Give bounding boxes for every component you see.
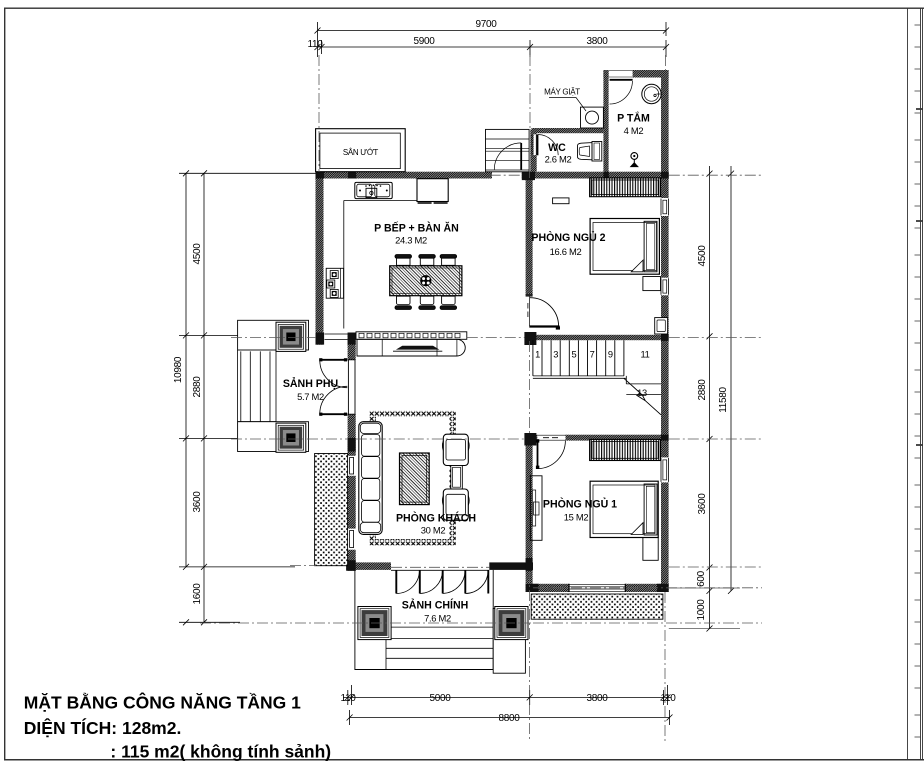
svg-text:2880: 2880 <box>192 376 203 398</box>
svg-text:110: 110 <box>660 693 676 704</box>
svg-text:MÁY GIẶT: MÁY GIẶT <box>544 88 580 97</box>
svg-text:SẢNH CHÍNH: SẢNH CHÍNH <box>402 599 469 612</box>
svg-text:3600: 3600 <box>697 493 708 515</box>
svg-text:SẢNH PHỤ: SẢNH PHỤ <box>283 377 338 390</box>
svg-text:2880: 2880 <box>697 379 708 401</box>
svg-text:3: 3 <box>553 350 558 360</box>
svg-text:4 M2: 4 M2 <box>624 125 644 136</box>
svg-text:MẶT BẰNG CÔNG NĂNG TẦNG 1: MẶT BẰNG CÔNG NĂNG TẦNG 1 <box>24 692 301 713</box>
svg-text:4500: 4500 <box>697 245 708 267</box>
svg-text:600: 600 <box>696 570 707 587</box>
svg-text:11: 11 <box>640 350 649 360</box>
svg-text:PHÒNG NGỦ 2: PHÒNG NGỦ 2 <box>531 231 605 244</box>
svg-text:PHÒNG KHÁCH: PHÒNG KHÁCH <box>396 512 476 525</box>
svg-text:9700: 9700 <box>475 19 497 30</box>
svg-text:SÂN ƯỚT: SÂN ƯỚT <box>343 148 379 157</box>
svg-text:7: 7 <box>590 350 595 360</box>
svg-text:: 115 m2( không tính sảnh): : 115 m2( không tính sảnh) <box>110 742 331 762</box>
svg-text:DIỆN TÍCH: 128m2.: DIỆN TÍCH: 128m2. <box>24 717 182 738</box>
svg-text:11580: 11580 <box>718 386 729 412</box>
svg-text:16.6 M2: 16.6 M2 <box>550 246 582 257</box>
svg-text:PHÒNG NGỦ 1: PHÒNG NGỦ 1 <box>543 498 617 511</box>
svg-text:110: 110 <box>340 693 356 704</box>
svg-text:4500: 4500 <box>192 243 203 265</box>
svg-text:P TẮM: P TẮM <box>617 112 650 125</box>
svg-text:9: 9 <box>608 350 613 360</box>
svg-text:WC: WC <box>548 142 566 154</box>
svg-text:13: 13 <box>637 388 647 398</box>
svg-text:2.6 M2: 2.6 M2 <box>545 154 572 165</box>
svg-text:30 M2: 30 M2 <box>421 525 446 536</box>
svg-text:7.6 M2: 7.6 M2 <box>424 613 451 624</box>
svg-text:5: 5 <box>571 350 576 360</box>
svg-text:1600: 1600 <box>192 583 203 605</box>
svg-text:5.7 M2: 5.7 M2 <box>297 391 324 402</box>
svg-text:5000: 5000 <box>429 693 451 704</box>
svg-text:15 M2: 15 M2 <box>564 512 589 523</box>
svg-text:3600: 3600 <box>192 491 203 513</box>
svg-text:1000: 1000 <box>696 599 707 621</box>
svg-text:P BẾP + BÀN ĂN: P BẾP + BÀN ĂN <box>374 222 459 235</box>
svg-text:3800: 3800 <box>586 693 608 704</box>
svg-text:10980: 10980 <box>173 356 184 383</box>
svg-text:110: 110 <box>307 39 323 50</box>
svg-text:24.3 M2: 24.3 M2 <box>395 235 427 246</box>
svg-text:8800: 8800 <box>498 713 520 724</box>
svg-text:1: 1 <box>535 350 540 360</box>
svg-text:5900: 5900 <box>413 36 435 47</box>
svg-text:3800: 3800 <box>586 36 608 47</box>
